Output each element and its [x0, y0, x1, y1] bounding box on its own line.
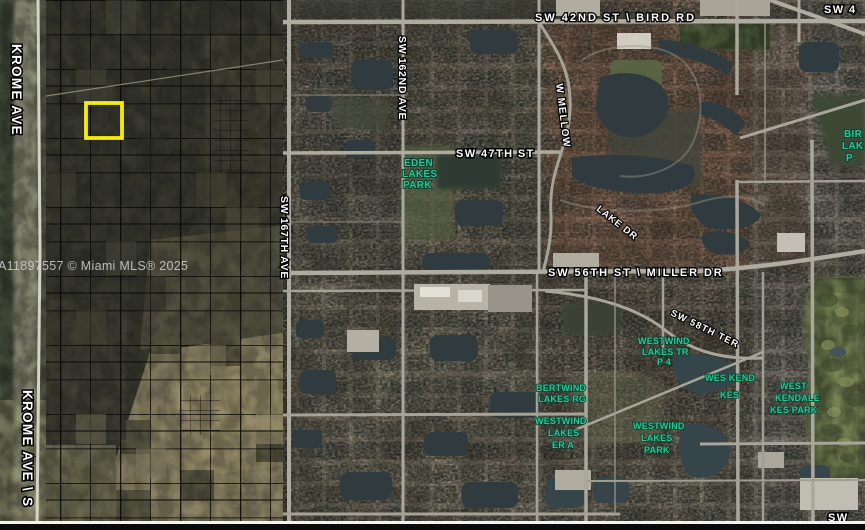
svg-text:KES: KES: [720, 390, 739, 400]
svg-text:SW 162ND AVE: SW 162ND AVE: [396, 36, 408, 120]
svg-text:KENDALE: KENDALE: [775, 393, 820, 403]
svg-text:WESTWIND: WESTWIND: [638, 336, 690, 346]
svg-text:ER A: ER A: [552, 440, 574, 450]
svg-text:LAKES: LAKES: [548, 428, 580, 438]
svg-text:LAKES: LAKES: [641, 433, 673, 443]
svg-text:A11897557 © Miami MLS® 2025: A11897557 © Miami MLS® 2025: [0, 259, 188, 273]
svg-text:PARK: PARK: [403, 180, 432, 191]
svg-text:KROME AVE: KROME AVE: [9, 44, 24, 136]
svg-text:LAKES TR: LAKES TR: [642, 347, 689, 357]
svg-text:PARK: PARK: [644, 445, 670, 455]
svg-text:KES PARK: KES PARK: [770, 405, 818, 415]
svg-text:P 4: P 4: [657, 357, 671, 367]
svg-text:SW 47TH ST: SW 47TH ST: [456, 148, 535, 160]
svg-text:EDEN: EDEN: [404, 158, 433, 169]
svg-text:SW 4: SW 4: [824, 4, 857, 16]
svg-text:SW 56TH ST \ MILLER DR: SW 56TH ST \ MILLER DR: [548, 267, 724, 279]
svg-text:KROME AVE \ S: KROME AVE \ S: [20, 390, 35, 507]
svg-text:WESTWIND: WESTWIND: [633, 421, 685, 431]
svg-text:BIR: BIR: [844, 129, 863, 140]
svg-text:SW 42ND ST \ BIRD RD: SW 42ND ST \ BIRD RD: [535, 12, 696, 24]
svg-text:LAK: LAK: [842, 141, 864, 152]
svg-text:WESTWIND: WESTWIND: [535, 416, 587, 426]
svg-text:WEST: WEST: [780, 381, 807, 391]
svg-text:SW 167TH AVE: SW 167TH AVE: [278, 196, 290, 279]
svg-text:LAKES: LAKES: [402, 169, 437, 180]
svg-text:LAKES RG: LAKES RG: [538, 394, 586, 404]
svg-text:P: P: [846, 153, 853, 164]
svg-text:BERTWIND: BERTWIND: [536, 383, 586, 393]
svg-text:WES KEND: WES KEND: [705, 373, 755, 383]
